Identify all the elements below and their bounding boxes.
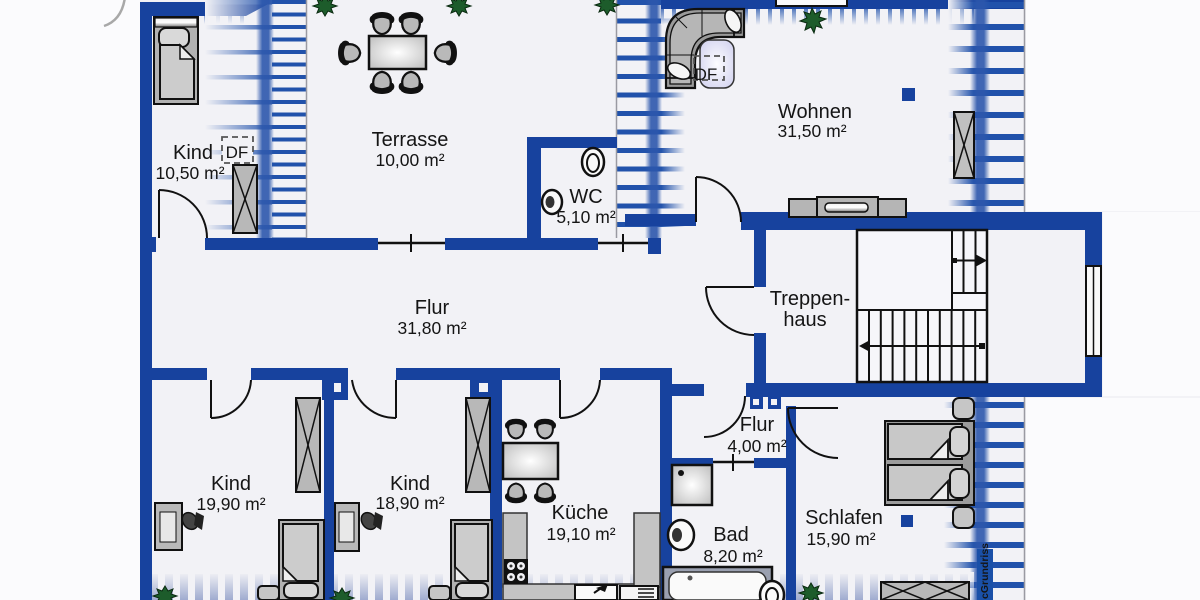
svg-text:Flur: Flur	[415, 297, 450, 319]
svg-text:18,90 m²: 18,90 m²	[375, 493, 444, 513]
svg-text:19,10 m²: 19,10 m²	[546, 524, 615, 544]
svg-text:Wohnen: Wohnen	[778, 101, 852, 123]
svg-text:Kind: Kind	[211, 473, 251, 495]
svg-text:19,90 m²: 19,90 m²	[196, 494, 265, 514]
svg-text:Kind: Kind	[173, 142, 213, 164]
svg-text:Flur: Flur	[740, 414, 775, 436]
svg-text:haus: haus	[783, 309, 826, 331]
svg-text:WC: WC	[569, 186, 602, 208]
svg-text:5,10 m²: 5,10 m²	[556, 207, 615, 227]
svg-text:Kind: Kind	[390, 473, 430, 495]
svg-text:Treppen-: Treppen-	[770, 288, 850, 310]
svg-text:8,20 m²: 8,20 m²	[703, 546, 762, 566]
svg-text:DF: DF	[695, 65, 718, 84]
svg-text:Bad: Bad	[713, 524, 749, 546]
svg-text:15,90 m²: 15,90 m²	[806, 529, 875, 549]
svg-text:Küche: Küche	[552, 502, 609, 524]
svg-text:cGrundriss: cGrundriss	[979, 543, 991, 599]
svg-text:31,80 m²: 31,80 m²	[397, 318, 466, 338]
svg-text:10,50 m²: 10,50 m²	[155, 163, 224, 183]
svg-text:31,50 m²: 31,50 m²	[777, 121, 846, 141]
svg-text:DF: DF	[226, 143, 249, 162]
svg-text:Schlafen: Schlafen	[805, 507, 883, 529]
svg-text:Terrasse: Terrasse	[372, 129, 449, 151]
svg-text:10,00 m²: 10,00 m²	[375, 150, 444, 170]
svg-text:4,00 m²: 4,00 m²	[727, 436, 786, 456]
